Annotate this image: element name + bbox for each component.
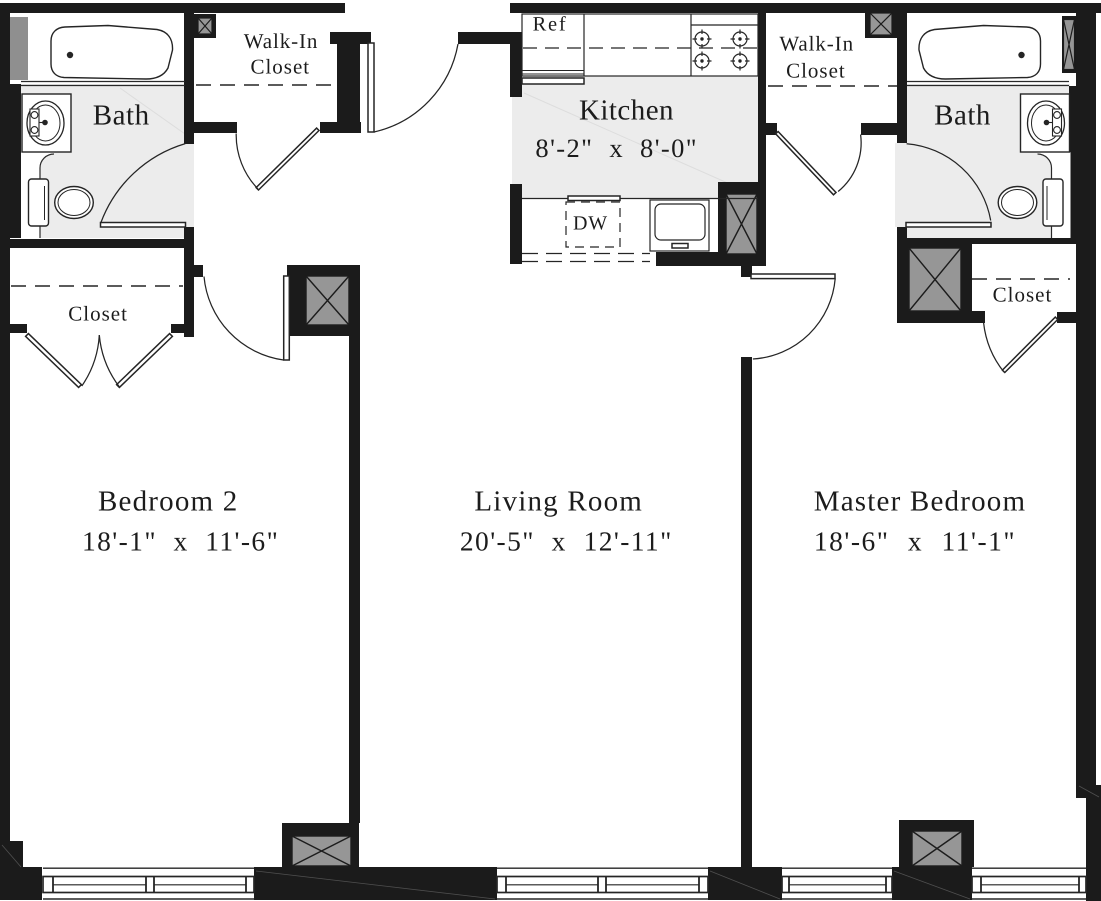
svg-text:20'-5" x 12'-11": 20'-5" x 12'-11"	[460, 526, 673, 557]
svg-text:Closet: Closet	[250, 55, 310, 79]
svg-text:Walk-In: Walk-In	[244, 29, 319, 53]
svg-text:Ref: Ref	[533, 14, 568, 36]
svg-text:8'-2" x 8'-0": 8'-2" x 8'-0"	[535, 133, 698, 163]
svg-text:18'-6" x 11'-1": 18'-6" x 11'-1"	[814, 526, 1016, 557]
svg-text:DW: DW	[573, 213, 608, 235]
svg-text:Bedroom 2: Bedroom 2	[98, 486, 238, 518]
svg-text:Bath: Bath	[93, 100, 150, 132]
svg-text:Closet: Closet	[786, 59, 846, 83]
svg-text:Closet: Closet	[68, 302, 128, 326]
svg-text:Bath: Bath	[934, 100, 991, 132]
svg-text:Master Bedroom: Master Bedroom	[814, 486, 1027, 518]
svg-text:Closet: Closet	[993, 283, 1053, 307]
svg-text:Living Room: Living Room	[474, 486, 643, 518]
svg-text:Kitchen: Kitchen	[579, 95, 674, 127]
svg-text:18'-1" x 11'-6": 18'-1" x 11'-6"	[82, 526, 279, 557]
svg-text:Walk-In: Walk-In	[779, 32, 854, 56]
